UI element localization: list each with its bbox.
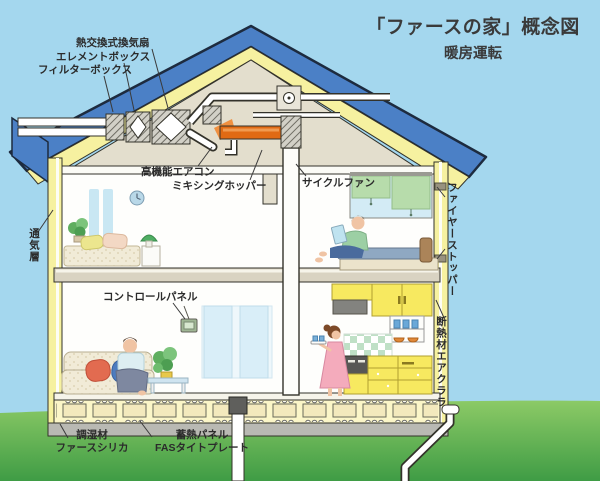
label-cycle-fan: サイクルファン [302,177,375,190]
label-fire-stopper: ファイヤーストッパー [445,182,458,302]
aircon-unit [203,106,221,124]
range-hood [333,300,367,314]
hot-air-duct [220,126,282,139]
vertical-air-duct [283,148,299,395]
label-element-box: エレメントボックス [56,51,150,64]
label-insulation: 断熱材 [435,316,447,351]
label-humidity-material-line1: 調湿材 [28,429,156,442]
green-shade [392,176,430,209]
upper-cabinet [332,284,372,300]
label-control-panel: コントロールパネル [103,291,198,304]
table-top [148,378,188,383]
title-block: 「ファースの家」概念図 暖房運転 [348,12,598,63]
label-mixing-hopper: ミキシングホッパー [172,180,267,193]
intake-duct [18,128,108,136]
label-fas-tight-plate: FASタイトプレート [138,442,266,455]
fas-house-concept-diagram: 「ファースの家」概念図 暖房運転 熱交換式換気扇 エレメントボックス フィルター… [0,0,600,481]
label-heat-storage-panel-line1: 蓄熱パネル [138,429,266,442]
label-fas-silica: ファースシリカ [28,442,156,455]
label-filter-box: フィルターボックス [38,64,132,77]
intake-duct [18,118,108,126]
label-insulation-air-clara: 断熱材エアクララ [434,316,447,401]
backsplash [344,334,392,356]
page-title: 「ファースの家」概念図 [348,12,598,39]
page-subtitle: 暖房運転 [348,42,598,63]
label-heat-storage-panel: 蓄熱パネル FASタイトプレート [138,429,266,455]
left-wall [48,158,62,424]
label-high-performance-aircon: 高機能エアコン [141,166,215,179]
armrest [420,238,432,262]
duct-cap [229,397,247,414]
duct-elbow [281,116,301,148]
pillow-yellow [80,235,103,251]
window-curtains [202,306,272,378]
lap-blanket [116,369,148,392]
label-air-clara: エアクララ [435,351,447,409]
label-heat-exchange-fan: 熱交換式換気扇 [76,37,150,50]
label-humidity-material: 調湿材 ファースシリカ [28,429,156,455]
curtain [103,189,113,239]
filter-box-unit [106,114,124,140]
curtain [89,189,99,239]
pillow-pink [102,233,127,249]
label-ventilation-layer: 通気層 [27,228,40,278]
dish-shelf [390,316,424,342]
